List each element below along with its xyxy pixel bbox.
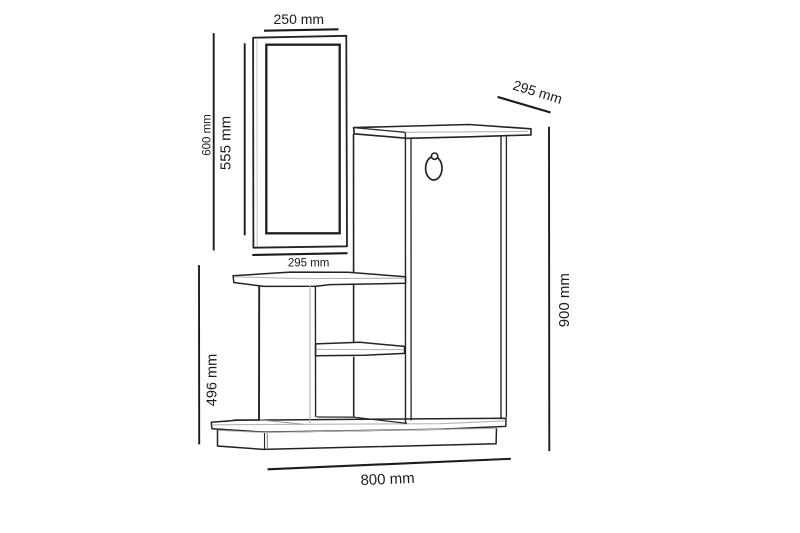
svg-text:800 mm: 800 mm <box>360 470 415 489</box>
svg-text:900 mm: 900 mm <box>556 273 573 327</box>
svg-text:496 mm: 496 mm <box>205 354 221 406</box>
svg-text:600 mm: 600 mm <box>201 114 213 156</box>
svg-text:555 mm: 555 mm <box>218 116 235 170</box>
svg-text:250 mm: 250 mm <box>274 11 325 27</box>
svg-text:295 mm: 295 mm <box>288 258 330 270</box>
